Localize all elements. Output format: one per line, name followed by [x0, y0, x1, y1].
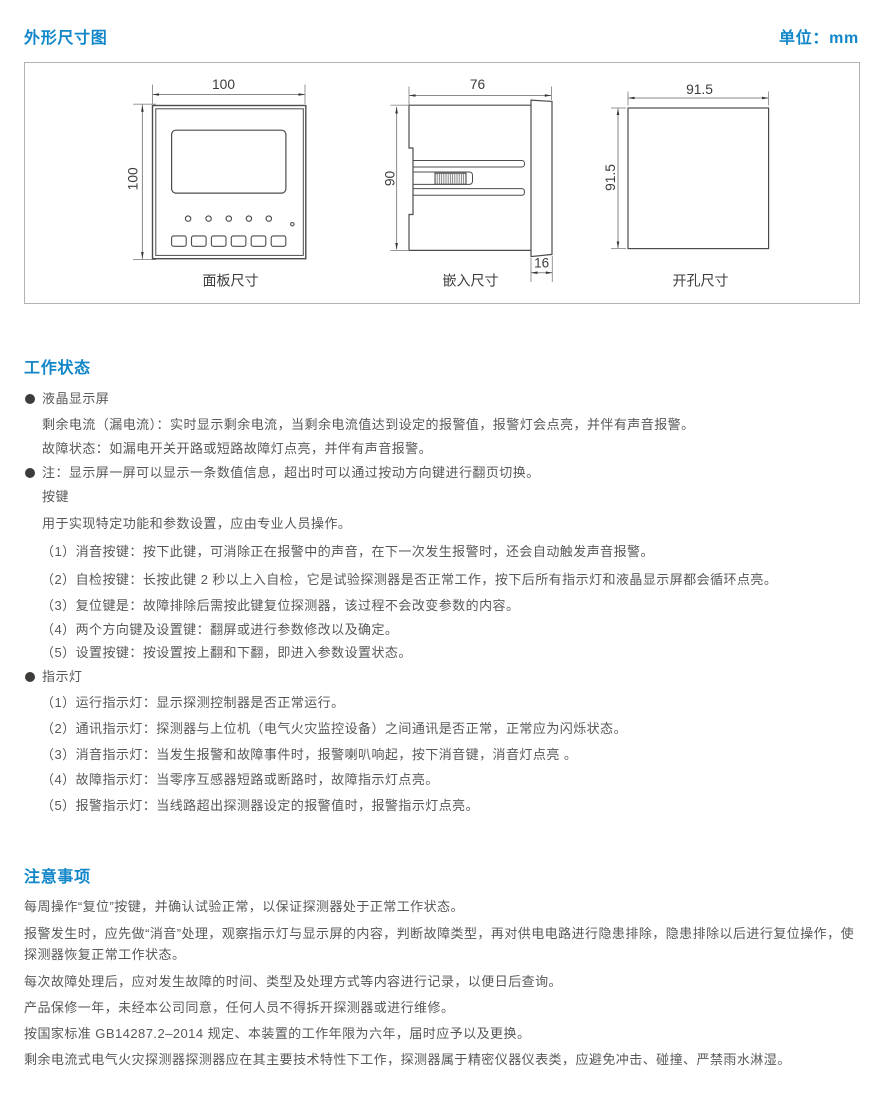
- svg-text:90: 90: [382, 171, 397, 187]
- svg-text:16: 16: [534, 256, 549, 271]
- svg-text:开孔尺寸: 开孔尺寸: [673, 273, 729, 289]
- svg-text:100: 100: [125, 167, 140, 190]
- svg-text:76: 76: [470, 77, 486, 92]
- svg-text:面板尺寸: 面板尺寸: [203, 273, 259, 289]
- svg-text:91.5: 91.5: [603, 164, 618, 191]
- svg-text:嵌入尺寸: 嵌入尺寸: [443, 273, 499, 289]
- svg-text:100: 100: [212, 77, 235, 92]
- svg-text:91.5: 91.5: [686, 82, 713, 97]
